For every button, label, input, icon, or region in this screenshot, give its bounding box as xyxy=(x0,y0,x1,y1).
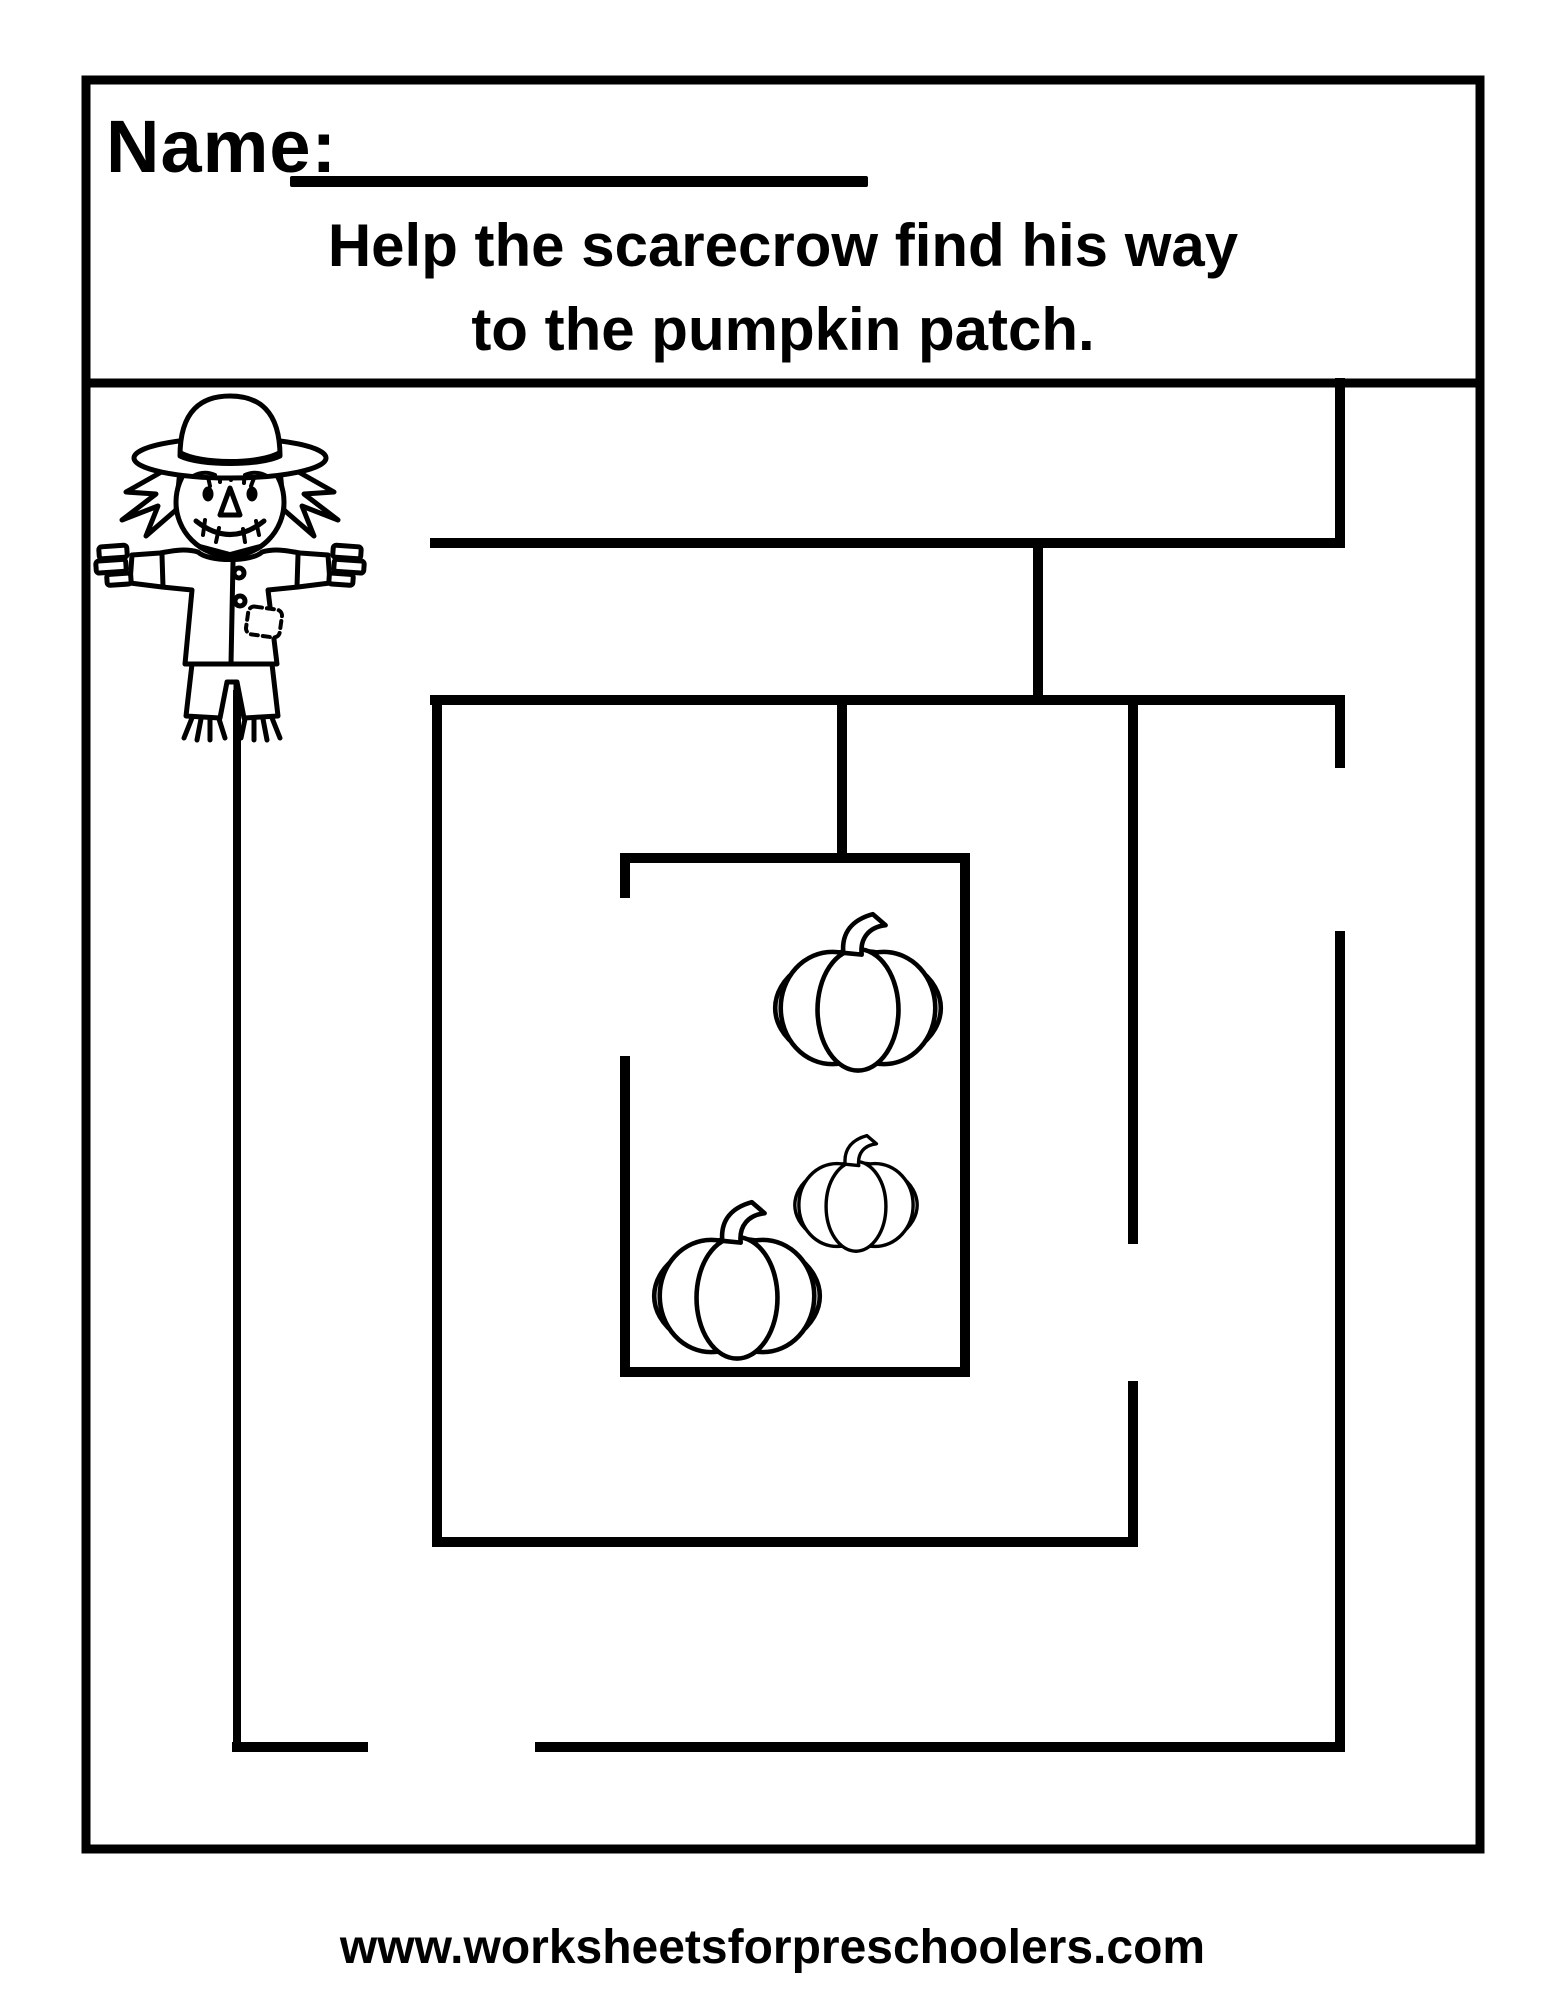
pumpkin-icon xyxy=(795,1136,917,1252)
worksheet-page: Name: Help the scarecrow find his way to… xyxy=(0,0,1545,2000)
pumpkin-patch xyxy=(654,914,941,1358)
maze-walls xyxy=(86,80,1480,1849)
maze-canvas[interactable] xyxy=(0,0,1545,2000)
scarecrow-icon xyxy=(95,396,366,740)
pumpkin-icon xyxy=(775,914,941,1070)
pumpkin-icon xyxy=(654,1202,820,1358)
website-url: www.worksheetsforpreschoolers.com xyxy=(0,1924,1545,1972)
